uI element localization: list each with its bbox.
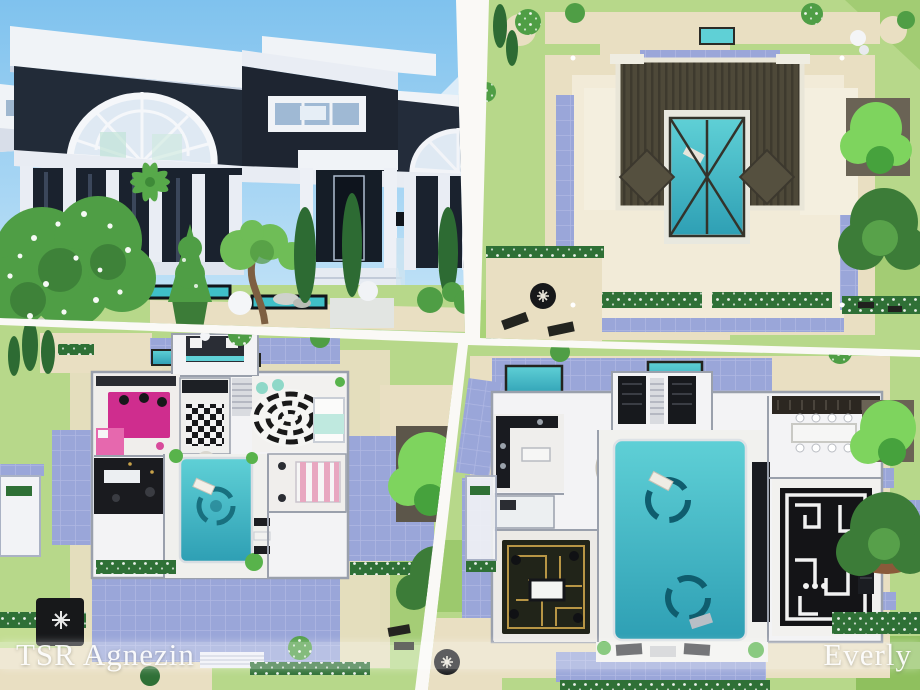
roof-scene: [476, 0, 920, 354]
striped-bed: [296, 462, 340, 502]
dining-table: [792, 424, 856, 442]
zebra-bedroom: [250, 376, 346, 452]
exterior-scene: [0, 0, 504, 345]
courtyard-pool: [164, 449, 270, 578]
glass-skylight: [664, 110, 750, 244]
decor-sphere: [228, 291, 252, 315]
garden-pavilion: [466, 476, 496, 560]
kitchen: [494, 414, 564, 492]
entry-pond: [700, 28, 734, 44]
right-colonnade: [404, 174, 470, 270]
tsr-screenshot-collage: TSR Agnezin Everly: [0, 0, 920, 690]
flowering-bush: [0, 196, 156, 328]
garden-sculpture: [850, 30, 866, 46]
upper-floor-scene: [0, 319, 470, 690]
fire-pit-patio: [486, 258, 602, 346]
kitchen-island: [522, 448, 550, 461]
clerestory-window: [268, 96, 366, 132]
striped-bedroom: [268, 454, 346, 512]
staircase: [650, 378, 664, 424]
black-office: [94, 458, 164, 514]
decor-sphere: [358, 281, 378, 301]
watermark-creator: TSR Agnezin: [16, 638, 195, 672]
game-table: [530, 580, 564, 600]
pink-bedroom: [94, 374, 180, 456]
watermark-title: Everly: [823, 638, 912, 672]
game-room: [494, 530, 598, 642]
main-pool: [598, 430, 768, 642]
garden-pavilion: [0, 464, 44, 556]
